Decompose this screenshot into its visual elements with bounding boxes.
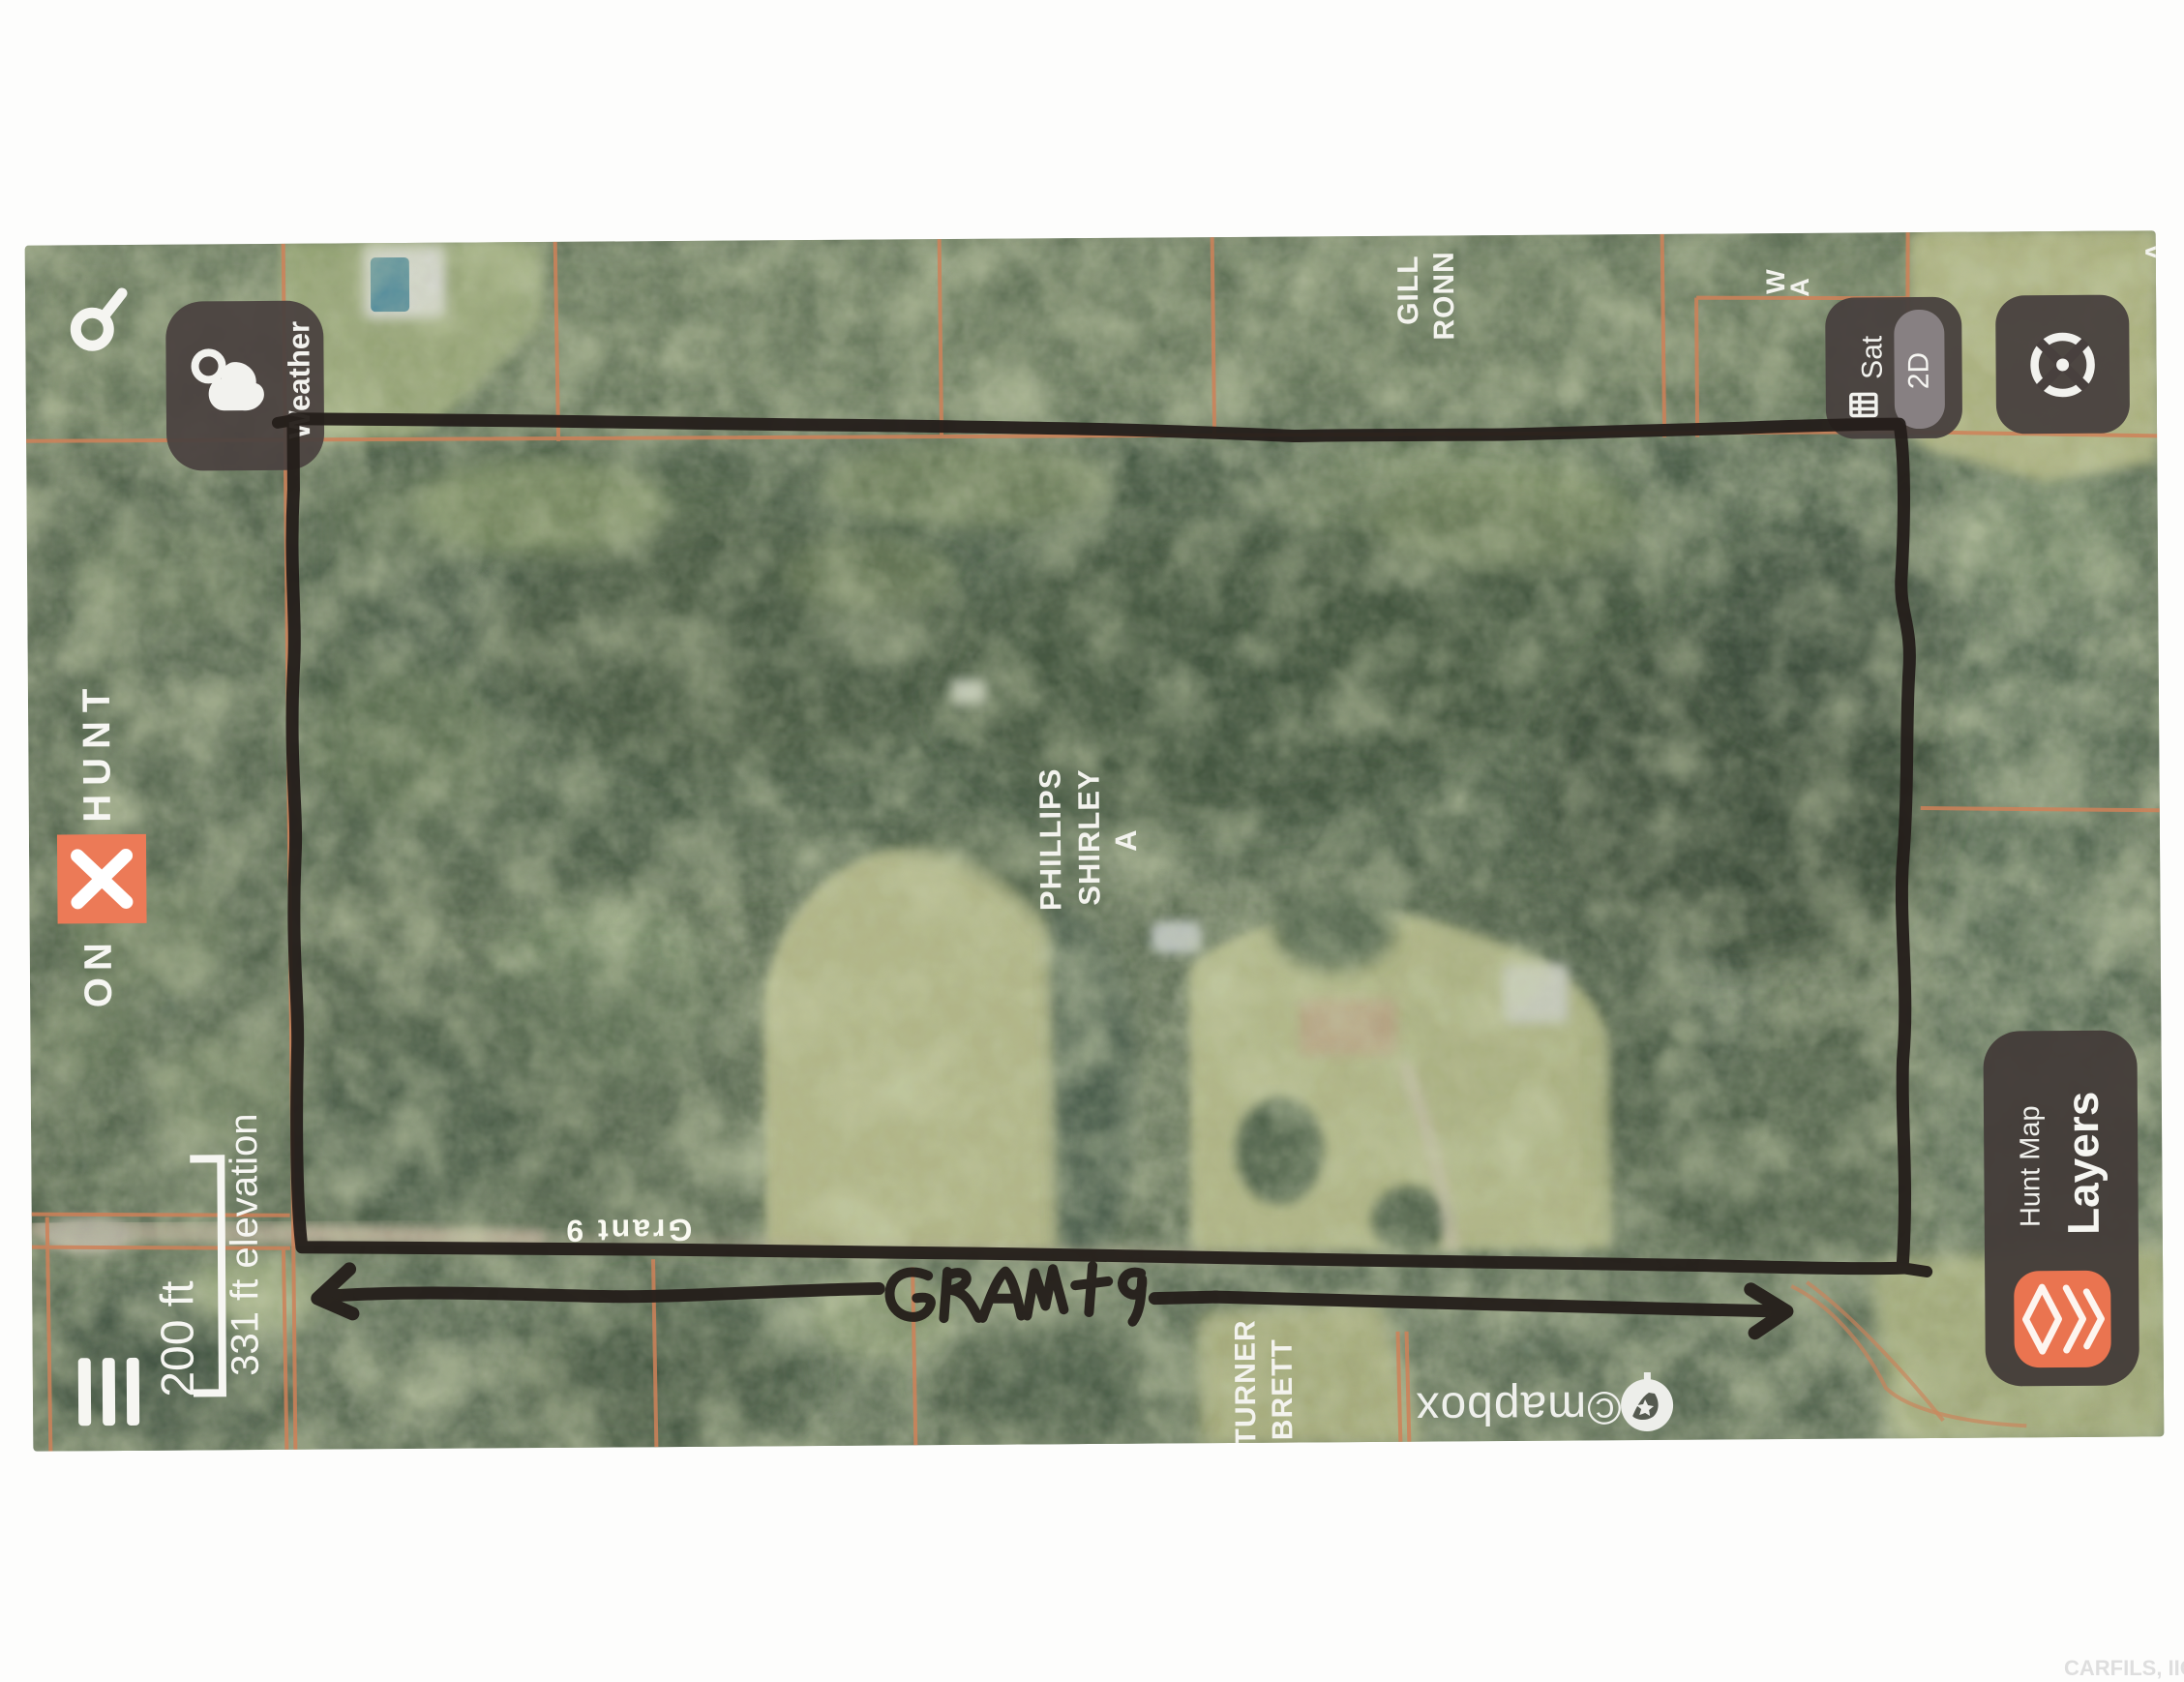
svg-text:200 ft: 200 ft (152, 1280, 204, 1397)
svg-text:A: A (1785, 278, 1814, 297)
svg-text:ON: ON (77, 936, 121, 1007)
svg-text:PHILLIPS: PHILLIPS (1032, 767, 1067, 911)
svg-text:Hunt Map: Hunt Map (2015, 1105, 2047, 1227)
svg-text:CARFILS, IIC: CARFILS, IIC (2064, 1656, 2184, 1680)
svg-text:GILL: GILL (1392, 255, 1425, 325)
svg-text:©mapbox: ©mapbox (1415, 1381, 1622, 1433)
svg-text:BRETT: BRETT (1267, 1338, 1300, 1440)
svg-text:A: A (1109, 829, 1143, 852)
svg-text:SHIRLEY: SHIRLEY (1071, 768, 1106, 906)
svg-text:2D: 2D (1902, 352, 1934, 390)
svg-text:TURNER: TURNER (1229, 1319, 1262, 1446)
svg-text:Sat: Sat (1856, 335, 1888, 379)
svg-text:331 ft elevation: 331 ft elevation (223, 1113, 267, 1376)
svg-text:HUNT: HUNT (75, 679, 119, 822)
svg-text:Layers: Layers (2057, 1092, 2109, 1236)
svg-text:RONN: RONN (1428, 251, 1461, 341)
